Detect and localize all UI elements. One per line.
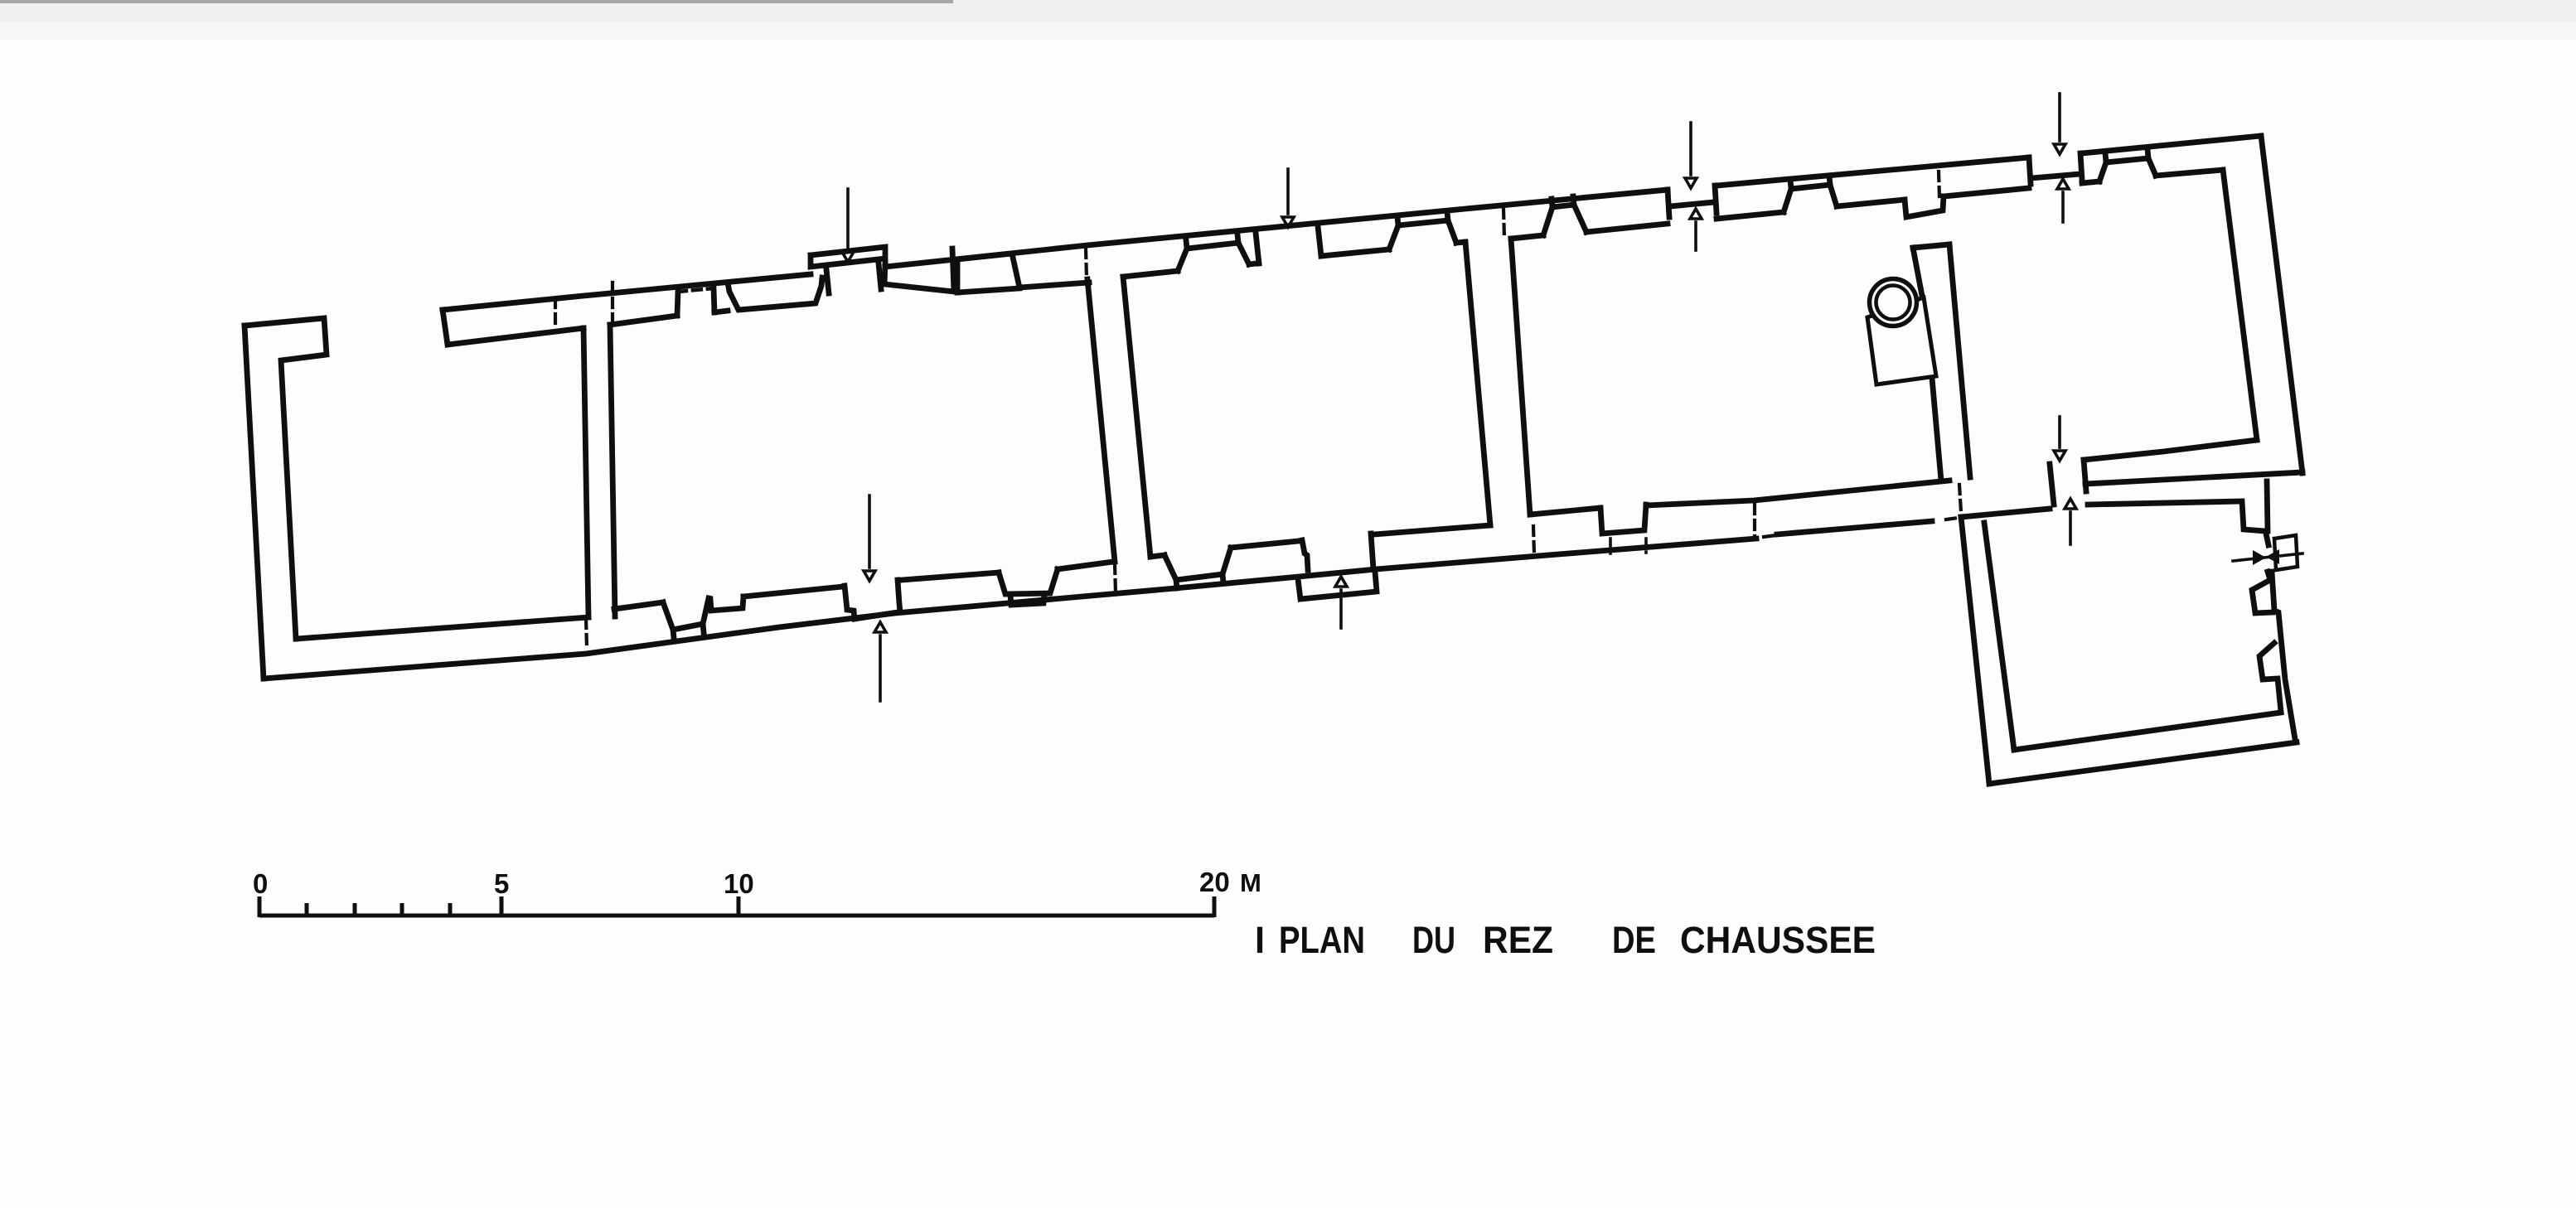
svg-text:DE: DE [1612,919,1656,961]
svg-text:I: I [1255,919,1265,961]
svg-text:10: 10 [724,868,754,899]
svg-text:CHAUSSEE: CHAUSSEE [1680,919,1876,961]
svg-text:M: M [1240,868,1261,897]
svg-text:DU: DU [1412,919,1455,961]
svg-text:5: 5 [494,868,509,899]
svg-text:REZ: REZ [1483,919,1553,961]
svg-text:20: 20 [1199,867,1230,897]
svg-text:0: 0 [253,868,268,899]
svg-text:PLAN: PLAN [1279,919,1365,961]
